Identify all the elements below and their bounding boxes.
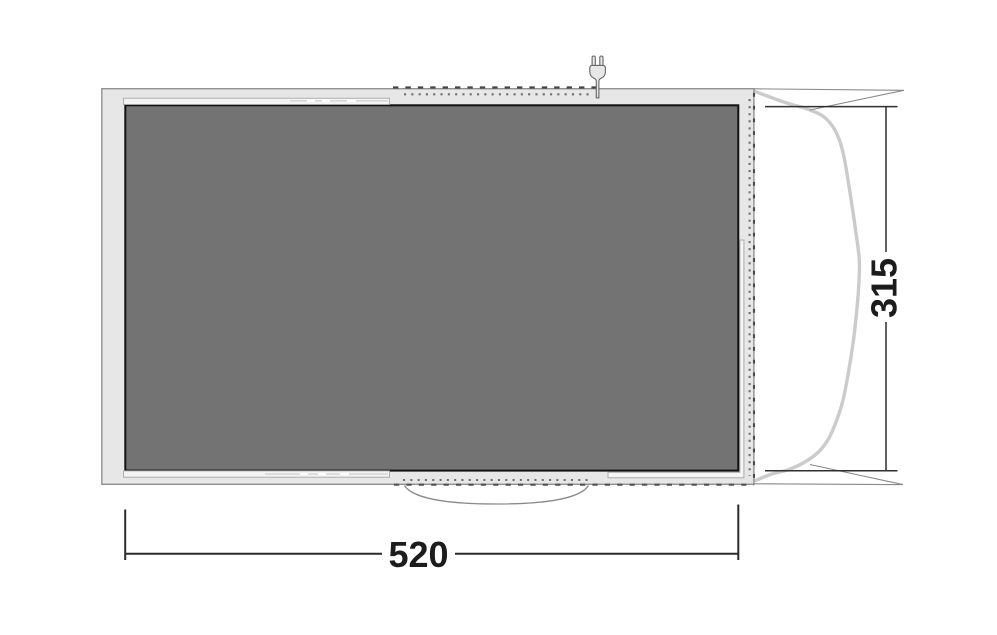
svg-text:315: 315 bbox=[864, 258, 905, 318]
svg-text:520: 520 bbox=[388, 534, 448, 575]
